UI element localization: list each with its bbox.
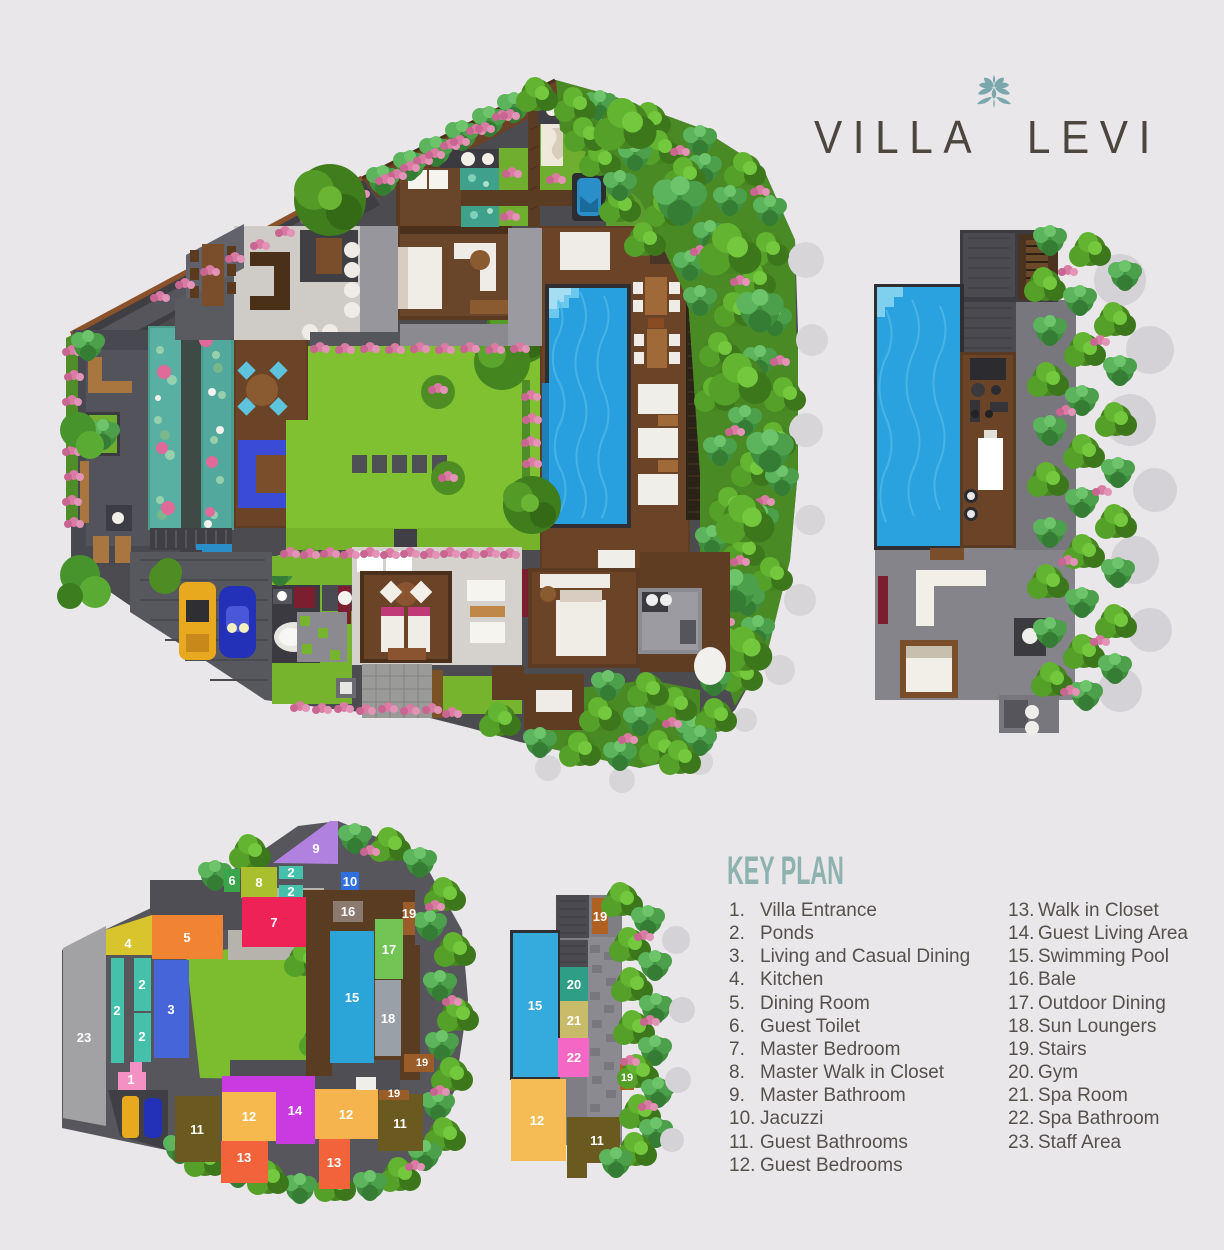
svg-text:11: 11 bbox=[393, 1116, 407, 1131]
svg-text:6: 6 bbox=[228, 873, 235, 888]
svg-text:15: 15 bbox=[528, 998, 542, 1013]
svg-text:19: 19 bbox=[621, 1072, 633, 1084]
svg-text:2: 2 bbox=[287, 865, 294, 880]
svg-text:11: 11 bbox=[590, 1133, 604, 1148]
svg-text:9: 9 bbox=[312, 841, 319, 856]
svg-text:21: 21 bbox=[567, 1013, 581, 1028]
svg-text:15: 15 bbox=[345, 990, 359, 1005]
svg-text:19: 19 bbox=[402, 906, 416, 921]
svg-text:5: 5 bbox=[183, 930, 190, 945]
svg-text:20: 20 bbox=[567, 977, 581, 992]
svg-text:2: 2 bbox=[138, 977, 145, 992]
svg-text:11: 11 bbox=[190, 1122, 204, 1137]
svg-text:19: 19 bbox=[388, 1088, 400, 1100]
svg-text:8: 8 bbox=[255, 875, 262, 890]
svg-text:2: 2 bbox=[113, 1003, 120, 1018]
svg-text:12: 12 bbox=[339, 1107, 353, 1122]
svg-text:2: 2 bbox=[287, 884, 294, 899]
svg-text:12: 12 bbox=[530, 1113, 544, 1128]
svg-text:13: 13 bbox=[327, 1155, 341, 1170]
svg-text:4: 4 bbox=[124, 936, 132, 951]
svg-text:14: 14 bbox=[288, 1103, 303, 1118]
svg-text:13: 13 bbox=[237, 1150, 251, 1165]
svg-text:2: 2 bbox=[138, 1029, 145, 1044]
svg-text:16: 16 bbox=[341, 904, 355, 919]
svg-text:12: 12 bbox=[242, 1109, 256, 1124]
svg-text:17: 17 bbox=[382, 942, 396, 957]
svg-text:3: 3 bbox=[167, 1002, 174, 1017]
svg-text:10: 10 bbox=[343, 874, 357, 889]
svg-text:19: 19 bbox=[416, 1057, 428, 1069]
svg-text:23: 23 bbox=[77, 1030, 91, 1045]
svg-text:22: 22 bbox=[567, 1050, 581, 1065]
svg-text:18: 18 bbox=[381, 1011, 395, 1026]
svg-text:7: 7 bbox=[270, 915, 277, 930]
svg-text:19: 19 bbox=[593, 909, 607, 924]
svg-text:1: 1 bbox=[127, 1072, 134, 1087]
